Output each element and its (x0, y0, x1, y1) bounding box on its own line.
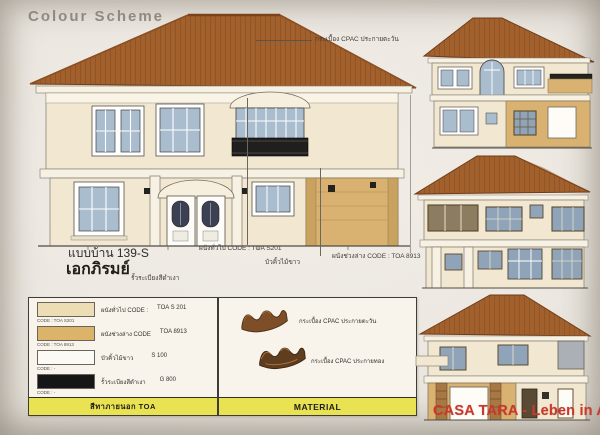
swatch-code-label: CODE : - (37, 390, 101, 395)
front-elevation-drawing (28, 10, 422, 252)
house-model-name: เอกภิรมย์ (66, 257, 130, 282)
paint-legend-panel: CODE : TOA S201 ผนังทั่วไป CODE : TOA S … (28, 297, 218, 416)
paint-legend-rows: CODE : TOA S201 ผนังทั่วไป CODE : TOA S … (29, 298, 217, 397)
legend-row-label: รั้วระเบียงสีดำเงา (101, 377, 146, 387)
wall-lower-annotation: ผนังช่วงล่าง CODE : TOA 8913 (332, 251, 421, 261)
color-swatch-molding (37, 350, 95, 365)
dimension-line (410, 95, 411, 253)
legend-row-label: ผนังทั่วไป CODE : (101, 305, 148, 315)
swatch-code-label: CODE : TOA S201 (37, 318, 101, 323)
casa-tara-watermark: CASA TARA - Leben in Asien (433, 403, 600, 419)
legend-row-value: G 800 (160, 377, 176, 383)
legend-row-label: ผนังช่วงล่าง CODE (101, 329, 151, 339)
material-items: กระเบื้อง CPAC ประกายตะวัน กระเบื้อง CPA… (219, 298, 416, 397)
roof-tile-profile-icon (256, 339, 309, 374)
wall-general-annotation: ผนังทั่วไป CODE : TOA S201 (199, 243, 282, 253)
roof-tile-profile-icon (237, 302, 291, 339)
legend-row-value: TOA S 201 (157, 305, 186, 311)
molding-white-annotation: บัวคิ้วไม้ขาว (265, 257, 300, 267)
legend-footer-bar: สีทาภายนอก TOA (29, 397, 217, 415)
material-footer-bar: MATERIAL (219, 397, 416, 415)
legend-row-railing: CODE : - รั้วระเบียงสีดำเงา G 800 (37, 374, 211, 394)
color-swatch-wall-lower (37, 326, 95, 341)
wall-lower-leader-line (320, 168, 321, 256)
color-swatch-railing (37, 374, 95, 389)
side-elevation-1-drawing (422, 10, 597, 150)
railing-black-annotation: รั้วระเบียงสีดำเงา (131, 273, 179, 283)
legend-row-wall-general: CODE : TOA S201 ผนังทั่วไป CODE : TOA S … (37, 302, 211, 322)
scanned-colour-scheme-sheet: Colour Scheme (0, 0, 600, 435)
legend-row-value: TOA 8913 (160, 329, 187, 335)
color-swatch-wall-general (37, 302, 95, 317)
side-elevation-2-drawing (412, 152, 597, 290)
legend-row-wall-lower: CODE : TOA 8913 ผนังช่วงล่าง CODE TOA 89… (37, 326, 211, 346)
swatch-code-label: CODE : TOA 8913 (37, 342, 101, 347)
roof-tile-annotation: กระเบื้อง CPAC ประกายตะวัน (315, 34, 399, 44)
wall-general-leader-line (247, 98, 248, 245)
material-panel: กระเบื้อง CPAC ประกายตะวัน กระเบื้อง CPA… (218, 297, 417, 416)
roof-annotation-leader-line (256, 40, 312, 41)
material-item-label: กระเบื้อง CPAC ประกายทอง (311, 356, 384, 366)
legend-row-value: S 100 (151, 353, 167, 359)
legend-row-molding: CODE : - บัวคิ้วไม้ขาว S 100 (37, 350, 211, 370)
swatch-code-label: CODE : - (37, 366, 101, 371)
legend-row-label: บัวคิ้วไม้ขาว (101, 353, 133, 363)
material-item-label: กระเบื้อง CPAC ประกายตะวัน (299, 316, 376, 326)
